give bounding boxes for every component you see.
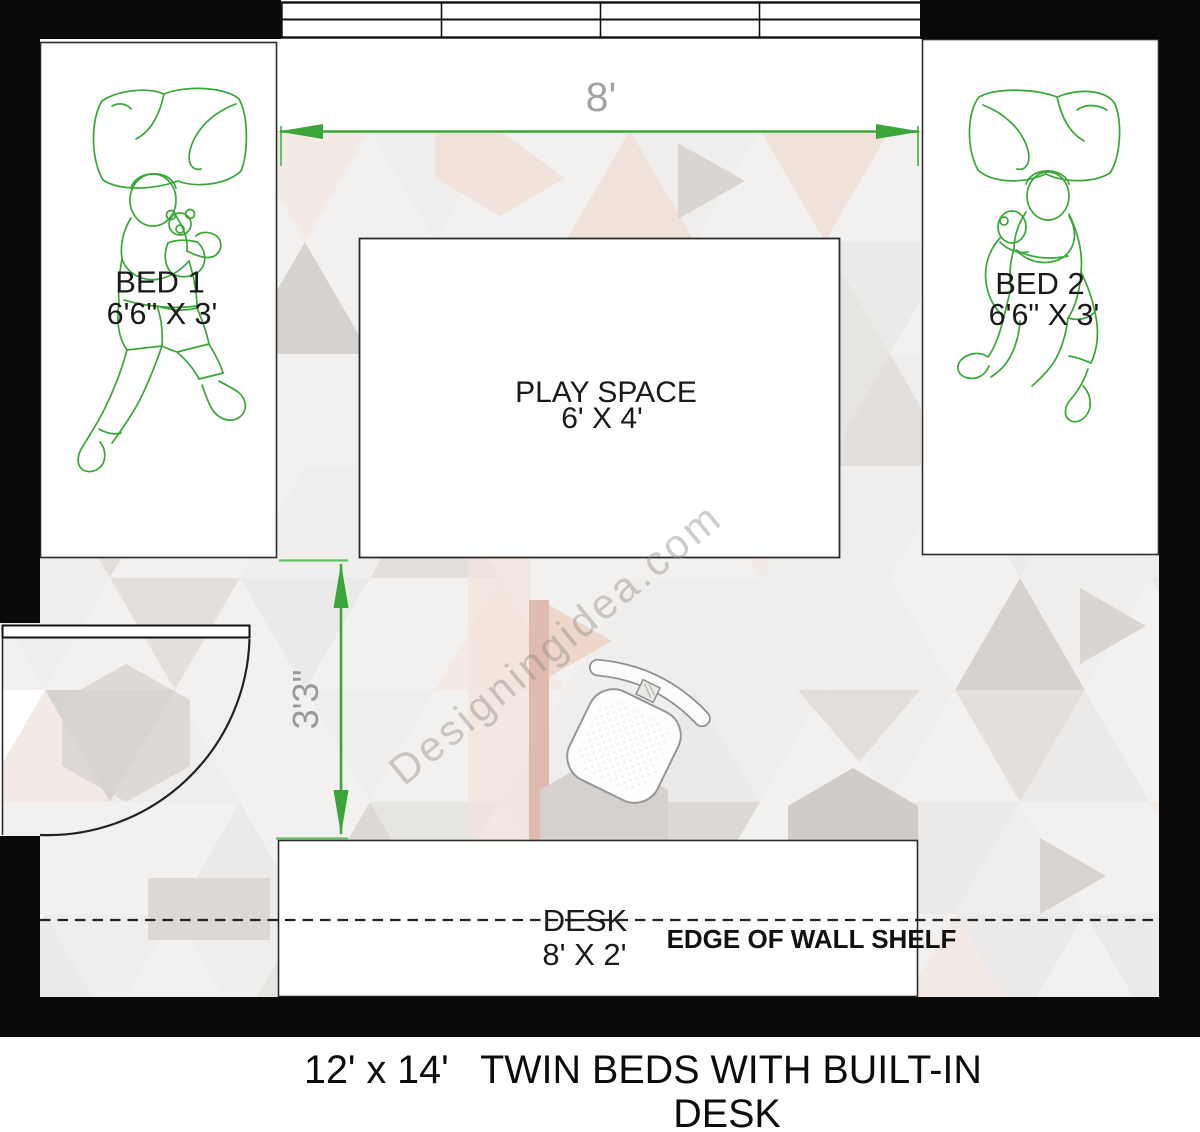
svg-text:DESK: DESK xyxy=(543,903,628,938)
svg-text:3'3": 3'3" xyxy=(285,670,326,730)
svg-text:6' X 4': 6' X 4' xyxy=(561,402,643,435)
svg-text:BED 1: BED 1 xyxy=(115,265,205,300)
svg-text:8' X 2': 8' X 2' xyxy=(542,937,626,972)
svg-text:6'6" X 3': 6'6" X 3' xyxy=(107,297,218,331)
svg-text:8': 8' xyxy=(586,74,617,120)
svg-text:6'6" X 3': 6'6" X 3' xyxy=(989,298,1100,332)
svg-text:DESK: DESK xyxy=(673,1092,781,1132)
svg-text:BED 2: BED 2 xyxy=(995,266,1085,301)
svg-text:12' x 14': 12' x 14' xyxy=(304,1048,449,1092)
svg-text:TWIN BEDS WITH BUILT-IN: TWIN BEDS WITH BUILT-IN xyxy=(480,1048,982,1092)
svg-text:EDGE OF WALL SHELF: EDGE OF WALL SHELF xyxy=(667,924,957,954)
